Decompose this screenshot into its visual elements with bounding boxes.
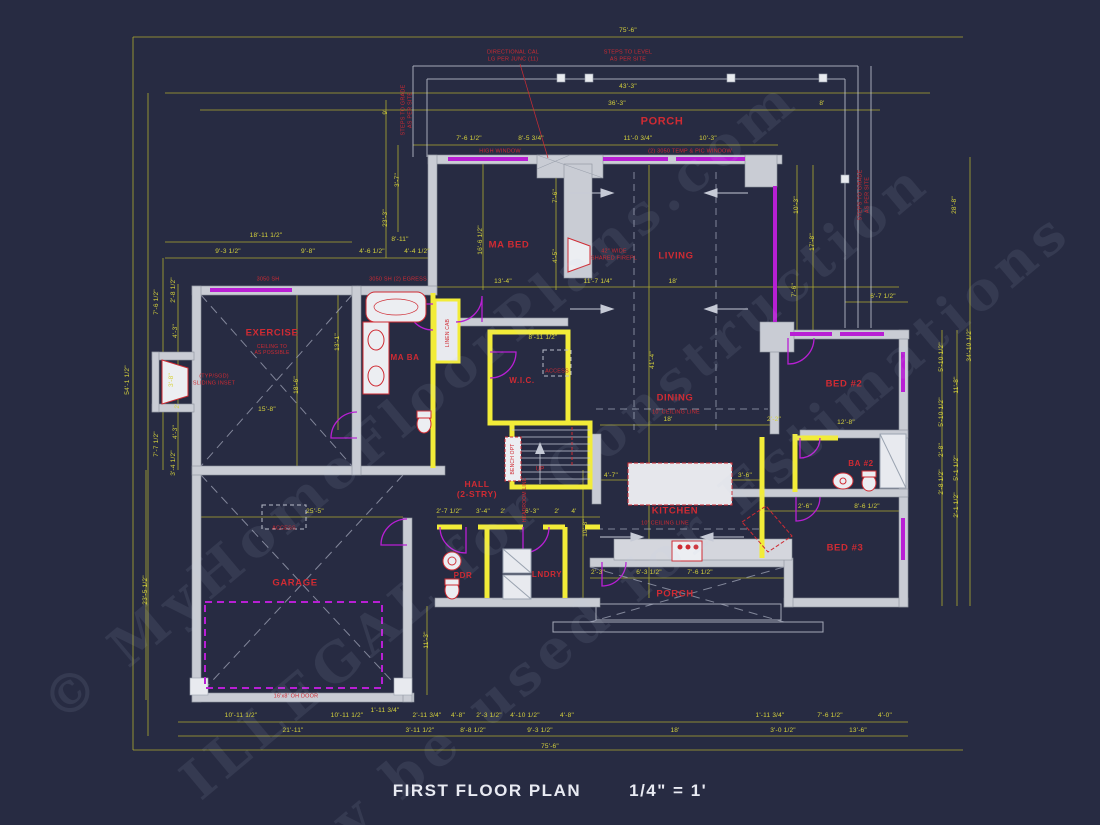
plan-title: FIRST FLOOR PLAN bbox=[393, 781, 581, 801]
annotation-leader bbox=[520, 64, 548, 158]
sheet-title: FIRST FLOOR PLAN 1/4" = 1' bbox=[0, 781, 1100, 801]
dimension-lines bbox=[133, 37, 970, 750]
ba2-sink bbox=[833, 473, 853, 489]
door-pdr bbox=[440, 527, 466, 553]
blueprint-canvas: © MyHomeFloorPlans.comILLEGAL for Constr… bbox=[0, 0, 1100, 825]
staircase bbox=[512, 430, 590, 484]
range bbox=[672, 541, 702, 561]
bathtub bbox=[366, 292, 426, 322]
walls bbox=[152, 155, 909, 702]
door-wic bbox=[490, 352, 516, 378]
pdr-sink bbox=[443, 552, 461, 570]
attic-access-boxes bbox=[262, 350, 571, 529]
bench-opt-box bbox=[505, 437, 521, 481]
kitchen-island bbox=[628, 463, 732, 505]
floorplan-drawing bbox=[0, 0, 1100, 825]
door-ba2 bbox=[800, 438, 820, 458]
door-bed3 bbox=[796, 497, 820, 521]
garage-door-dashed bbox=[205, 602, 382, 688]
ceiling-dashed-lines bbox=[201, 172, 784, 693]
maba-vanity bbox=[363, 322, 389, 394]
plan-scale: 1/4" = 1' bbox=[629, 781, 707, 801]
bay-window-seat bbox=[162, 360, 188, 404]
